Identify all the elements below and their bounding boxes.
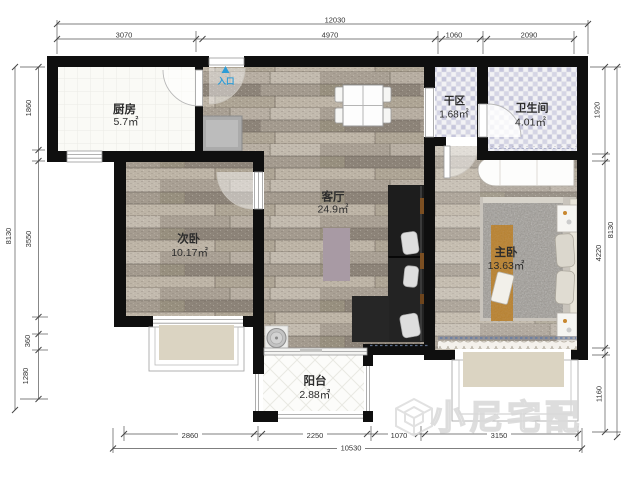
svg-text:卫生间: 卫生间	[516, 101, 549, 115]
svg-text:3070: 3070	[116, 31, 133, 40]
svg-text:1860: 1860	[24, 100, 33, 117]
svg-text:入口: 入口	[216, 76, 234, 86]
svg-text:360: 360	[23, 335, 32, 348]
svg-text:2860: 2860	[182, 431, 199, 440]
svg-text:1.68㎡: 1.68㎡	[439, 109, 468, 121]
svg-text:2.88㎡: 2.88㎡	[299, 389, 330, 401]
svg-text:10.17㎡: 10.17㎡	[171, 247, 208, 259]
svg-text:客厅: 客厅	[321, 190, 345, 204]
svg-text:2090: 2090	[521, 31, 538, 40]
svg-text:10530: 10530	[341, 444, 362, 453]
svg-text:小尼宅配: 小尼宅配	[431, 398, 583, 437]
svg-text:4220: 4220	[594, 245, 603, 262]
svg-text:厨房: 厨房	[113, 102, 136, 116]
svg-text:1070: 1070	[391, 431, 408, 440]
svg-text:2250: 2250	[307, 431, 324, 440]
svg-text:8130: 8130	[4, 228, 13, 245]
svg-text:1060: 1060	[446, 31, 463, 40]
svg-text:阳台: 阳台	[304, 374, 327, 388]
svg-text:8130: 8130	[606, 222, 615, 239]
svg-text:24.9㎡: 24.9㎡	[318, 204, 349, 216]
svg-text:1920: 1920	[593, 102, 602, 119]
svg-text:4.01㎡: 4.01㎡	[515, 117, 546, 129]
svg-text:次卧: 次卧	[177, 232, 200, 246]
svg-text:5.7㎡: 5.7㎡	[113, 116, 139, 128]
svg-text:13.63㎡: 13.63㎡	[488, 260, 525, 272]
svg-text:1160: 1160	[595, 386, 604, 402]
svg-text:12030: 12030	[325, 16, 346, 25]
svg-text:4970: 4970	[322, 31, 339, 40]
svg-text:主卧: 主卧	[495, 245, 518, 259]
svg-text:干区: 干区	[444, 95, 465, 107]
svg-text:3550: 3550	[24, 231, 33, 248]
svg-text:1280: 1280	[21, 368, 30, 385]
